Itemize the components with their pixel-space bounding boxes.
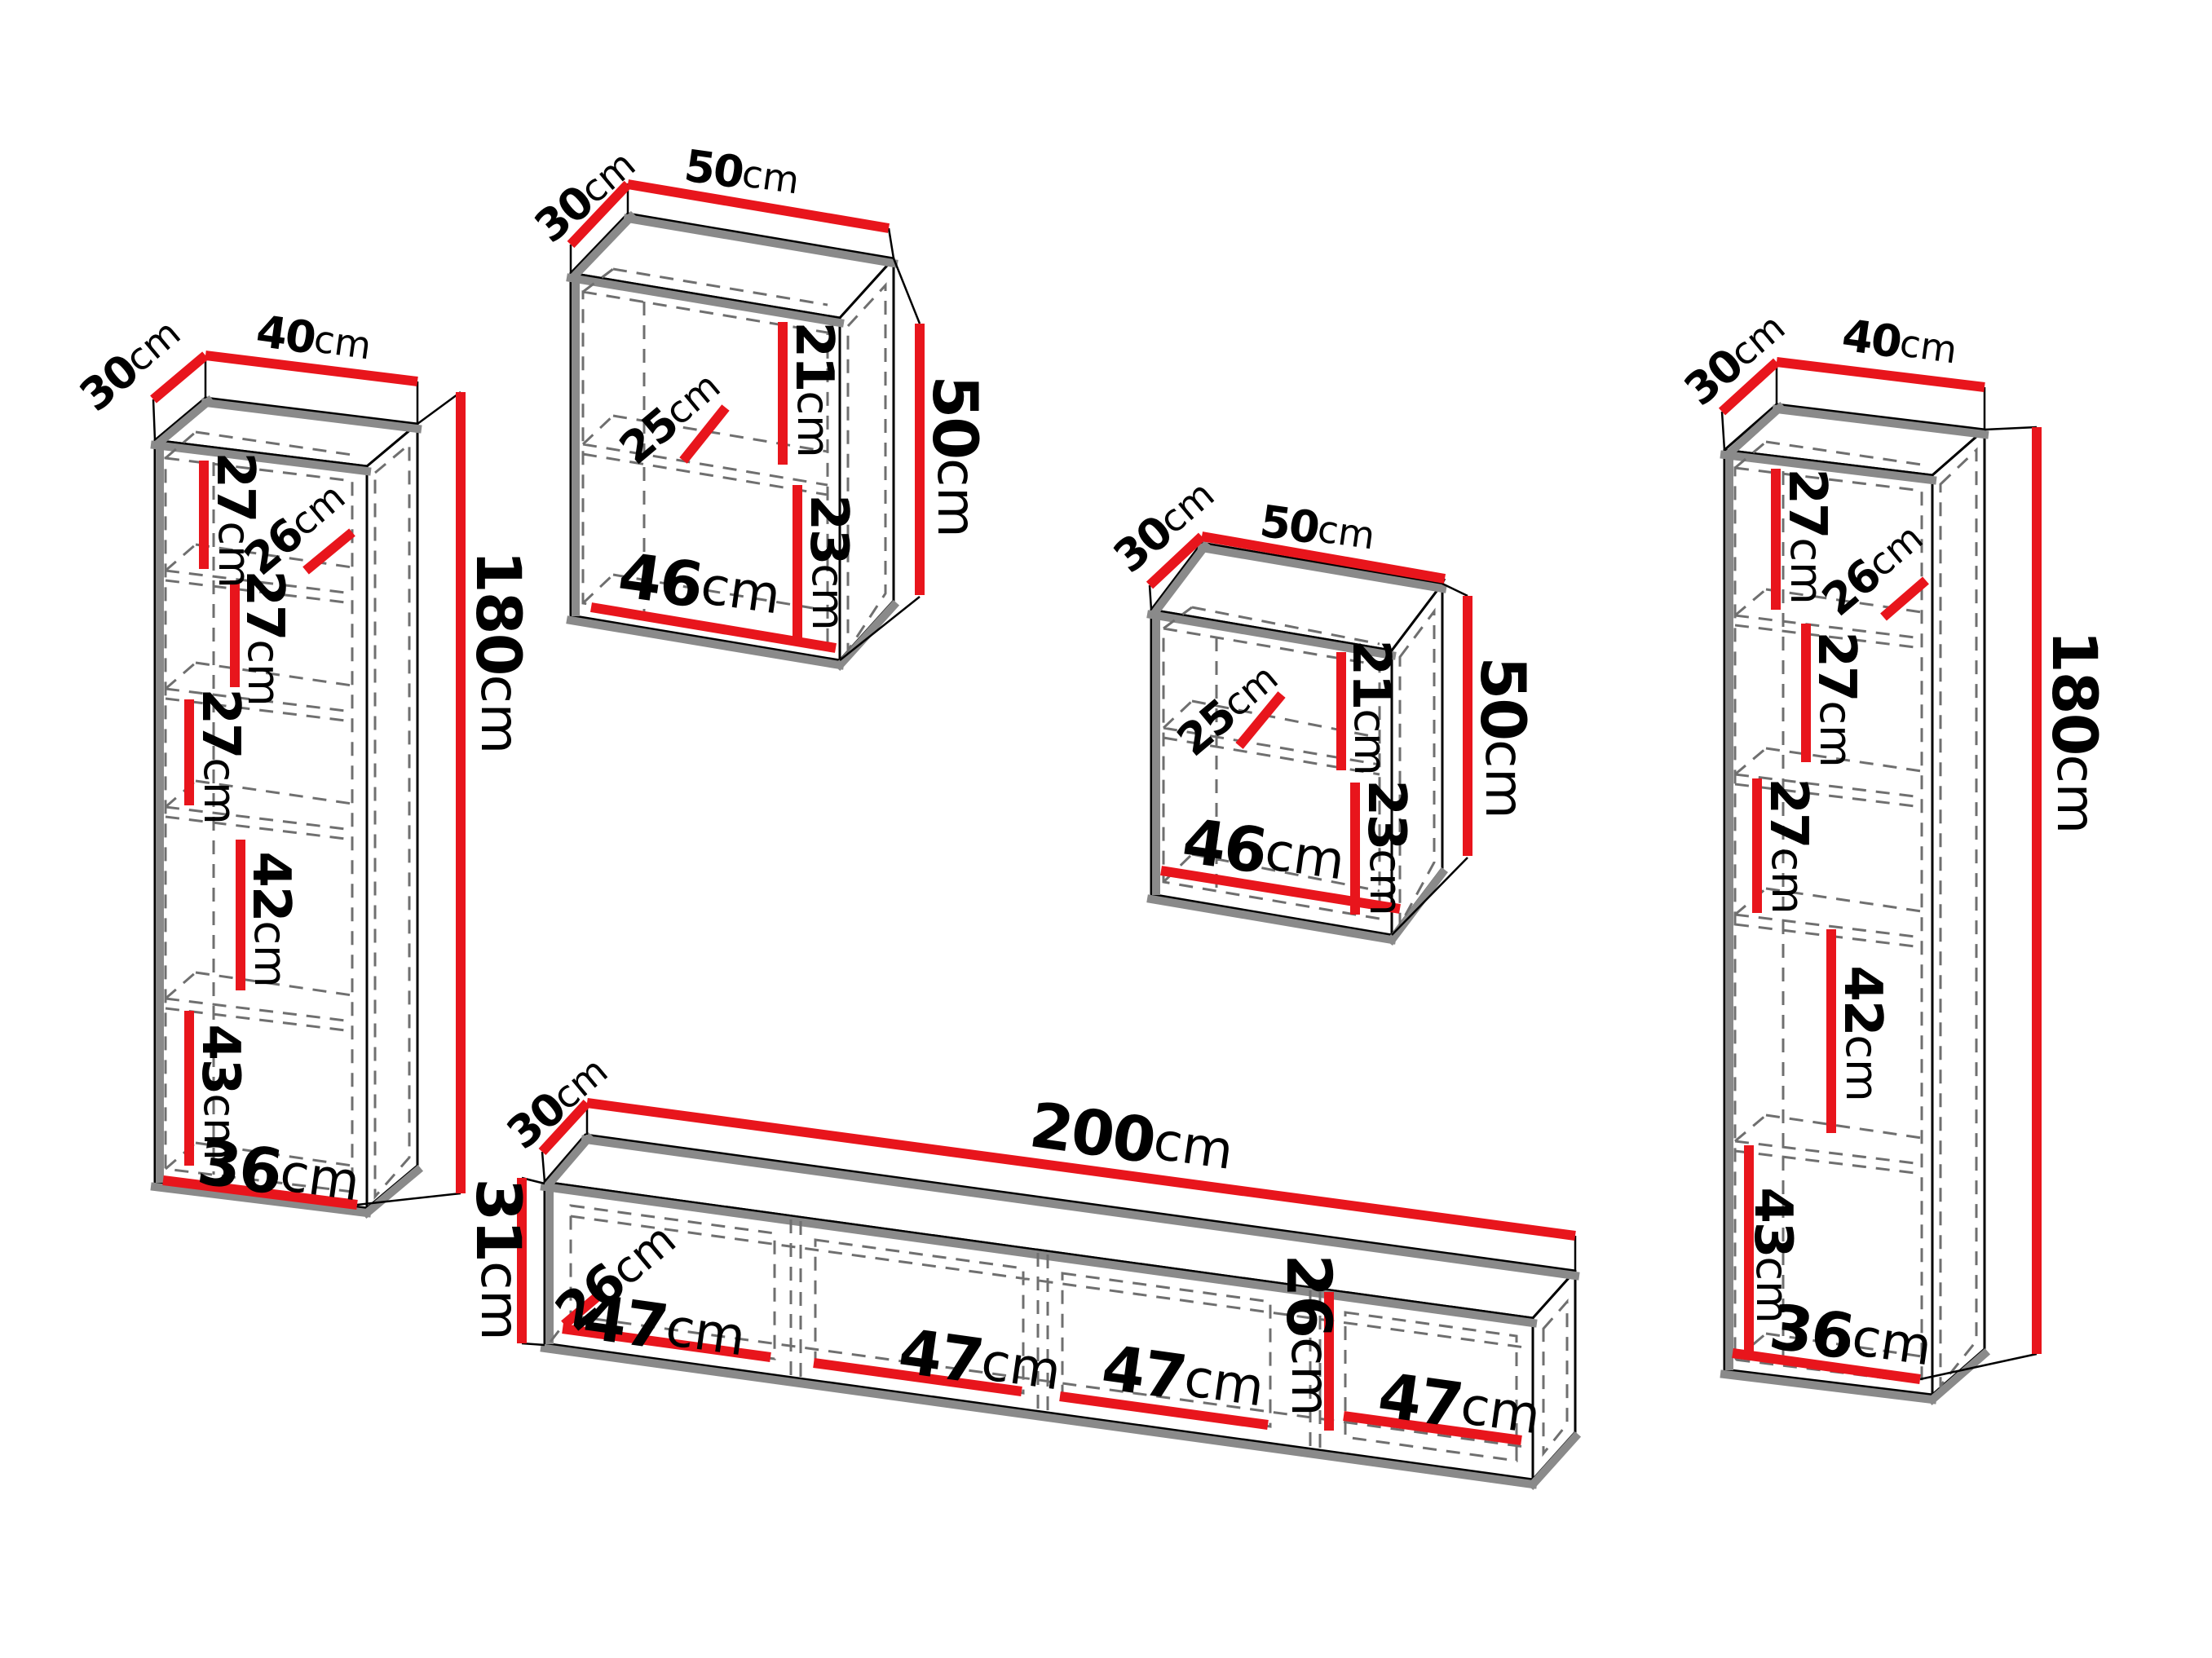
right-cabinet-section4-label: 42cm	[1832, 965, 1892, 1101]
right-cabinet-section3-label: 27cm	[1758, 778, 1818, 914]
wall-cabinet-left: 30cm 50cm 50cm 25cm 21cm 23cm 46cm	[525, 139, 992, 665]
right-cabinet-width-label: 40cm	[1839, 309, 1961, 376]
left-cabinet-height-label: 180cm	[463, 550, 536, 754]
wall-cabinet-right-lower-section-label: 23cm	[1356, 779, 1416, 915]
tv-stand-height-label: 31cm	[463, 1178, 536, 1340]
diagram-canvas: 30cm 40cm 180cm 27cm 26cm 27cm 27cm 42cm…	[0, 0, 2212, 1658]
tv-stand-divider-height-label: 26cm	[1274, 1254, 1346, 1416]
left-cabinet-section3-label: 27cm	[190, 688, 250, 824]
left-cabinet-section2-label: 27cm	[234, 570, 294, 706]
tv-stand: 30cm 200cm 31cm 26cm 47cm 47cm 47cm 26cm…	[463, 1045, 1576, 1484]
tv-stand-width-label: 200cm	[1026, 1088, 1238, 1188]
wall-cabinet-right-height-label: 50cm	[1468, 656, 1540, 818]
left-tall-cabinet: 30cm 40cm 180cm 27cm 26cm 27cm 27cm 42cm…	[70, 305, 536, 1219]
wall-cabinet-right-upper-section-label: 21cm	[1340, 639, 1401, 775]
right-cabinet-section2-label: 27cm	[1806, 631, 1866, 767]
wall-cabinet-right: 30cm 50cm 50cm 25cm 21cm 23cm 46cm	[1104, 469, 1540, 940]
wall-cabinet-left-height-label: 50cm	[920, 375, 992, 537]
left-cabinet-section4-label: 42cm	[241, 851, 301, 987]
left-cabinet-depth-label: 30cm	[70, 307, 192, 421]
furniture-dimension-diagram: 30cm 40cm 180cm 27cm 26cm 27cm 27cm 42cm…	[0, 0, 2212, 1658]
wall-cabinet-left-upper-section-label: 21cm	[784, 321, 844, 457]
right-tall-cabinet: 30cm 40cm 180cm 27cm 26cm 27cm 27cm 42cm…	[1675, 302, 2112, 1400]
wall-cabinet-left-lower-section-label: 23cm	[798, 494, 859, 630]
right-cabinet-height-label: 180cm	[2039, 630, 2112, 834]
